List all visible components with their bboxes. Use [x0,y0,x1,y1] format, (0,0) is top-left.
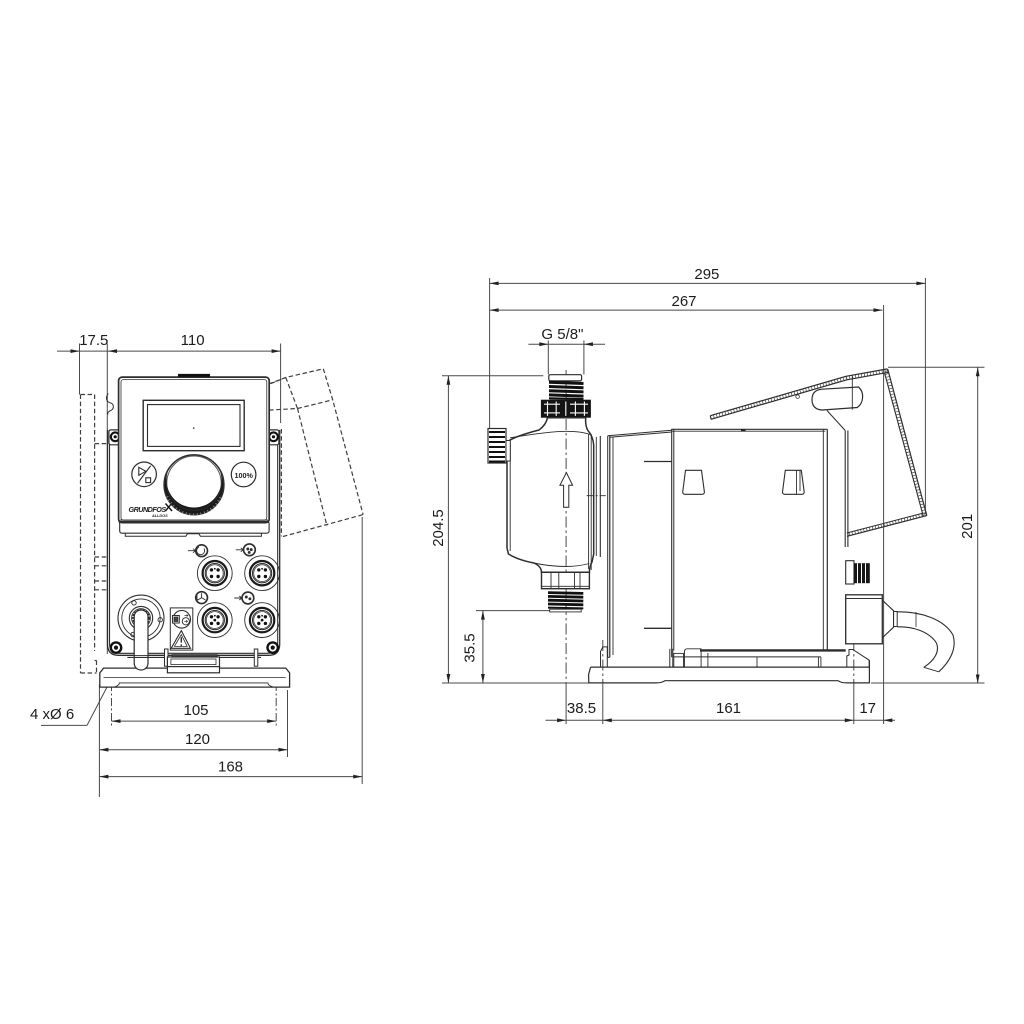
svg-text:168: 168 [218,759,243,776]
svg-text:161: 161 [716,700,741,717]
svg-text:17: 17 [859,700,876,717]
svg-text:ALLDOS: ALLDOS [151,514,168,518]
svg-text:267: 267 [671,293,696,310]
svg-text:100%: 100% [235,471,254,480]
svg-text:110: 110 [181,332,205,349]
svg-text:17.5: 17.5 [79,332,108,349]
svg-text:4 xØ 6: 4 xØ 6 [30,706,74,723]
svg-text:G 5/8": G 5/8" [541,326,583,343]
svg-text:295: 295 [694,266,719,283]
svg-text:120: 120 [185,731,210,748]
svg-text:201: 201 [959,514,976,539]
svg-text:GRUNDFOS: GRUNDFOS [129,505,167,514]
svg-text:35.5: 35.5 [462,633,479,662]
svg-text:204.5: 204.5 [430,509,447,547]
svg-text:38.5: 38.5 [567,700,596,717]
svg-text:105: 105 [183,702,208,719]
